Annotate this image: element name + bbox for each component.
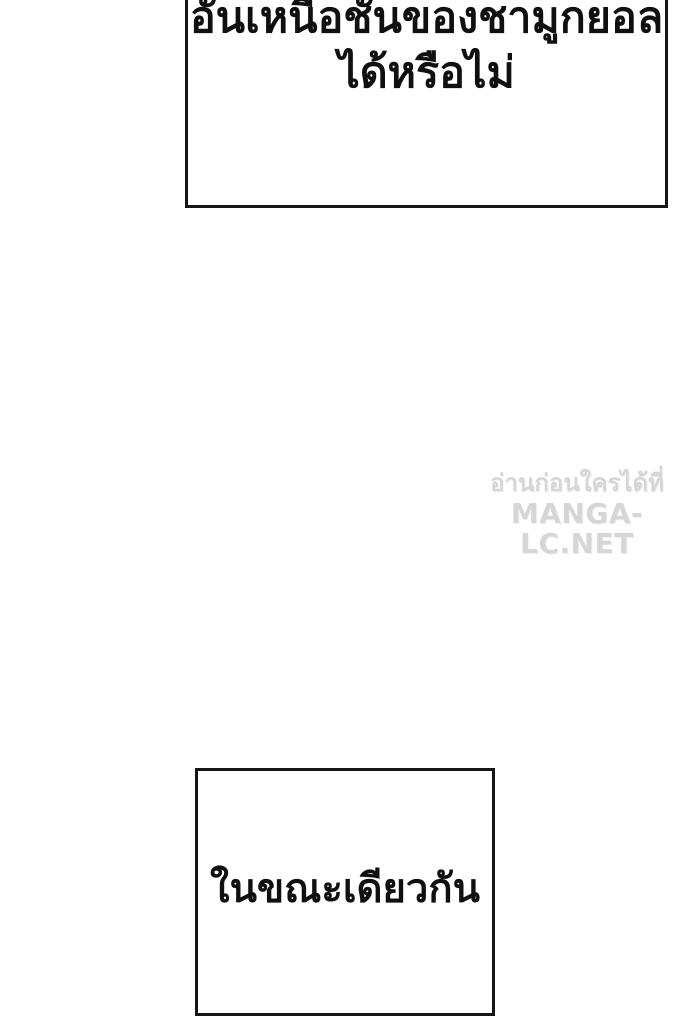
watermark-thai-text: อ่านก่อนใครได้ที่ <box>470 467 684 499</box>
manga-page: อันเหนือชั้นของชามูกยอล ได้หรือไม่ อ่านก… <box>0 0 690 1000</box>
caption-top-text: อันเหนือชั้นของชามูกยอล ได้หรือไม่ <box>188 0 665 101</box>
caption-box-bottom: ในขณะเดียวกัน <box>195 768 495 1016</box>
watermark-site-name: MANGA-LC.NET <box>470 499 684 559</box>
caption-top-line2: ได้หรือไม่ <box>188 46 665 101</box>
site-watermark: อ่านก่อนใครได้ที่ MANGA-LC.NET <box>470 467 684 559</box>
caption-box-top: อันเหนือชั้นของชามูกยอล ได้หรือไม่ <box>185 0 668 208</box>
caption-top-line1: อันเหนือชั้นของชามูกยอล <box>188 0 665 46</box>
caption-bottom-text: ในขณะเดียวกัน <box>198 863 492 915</box>
